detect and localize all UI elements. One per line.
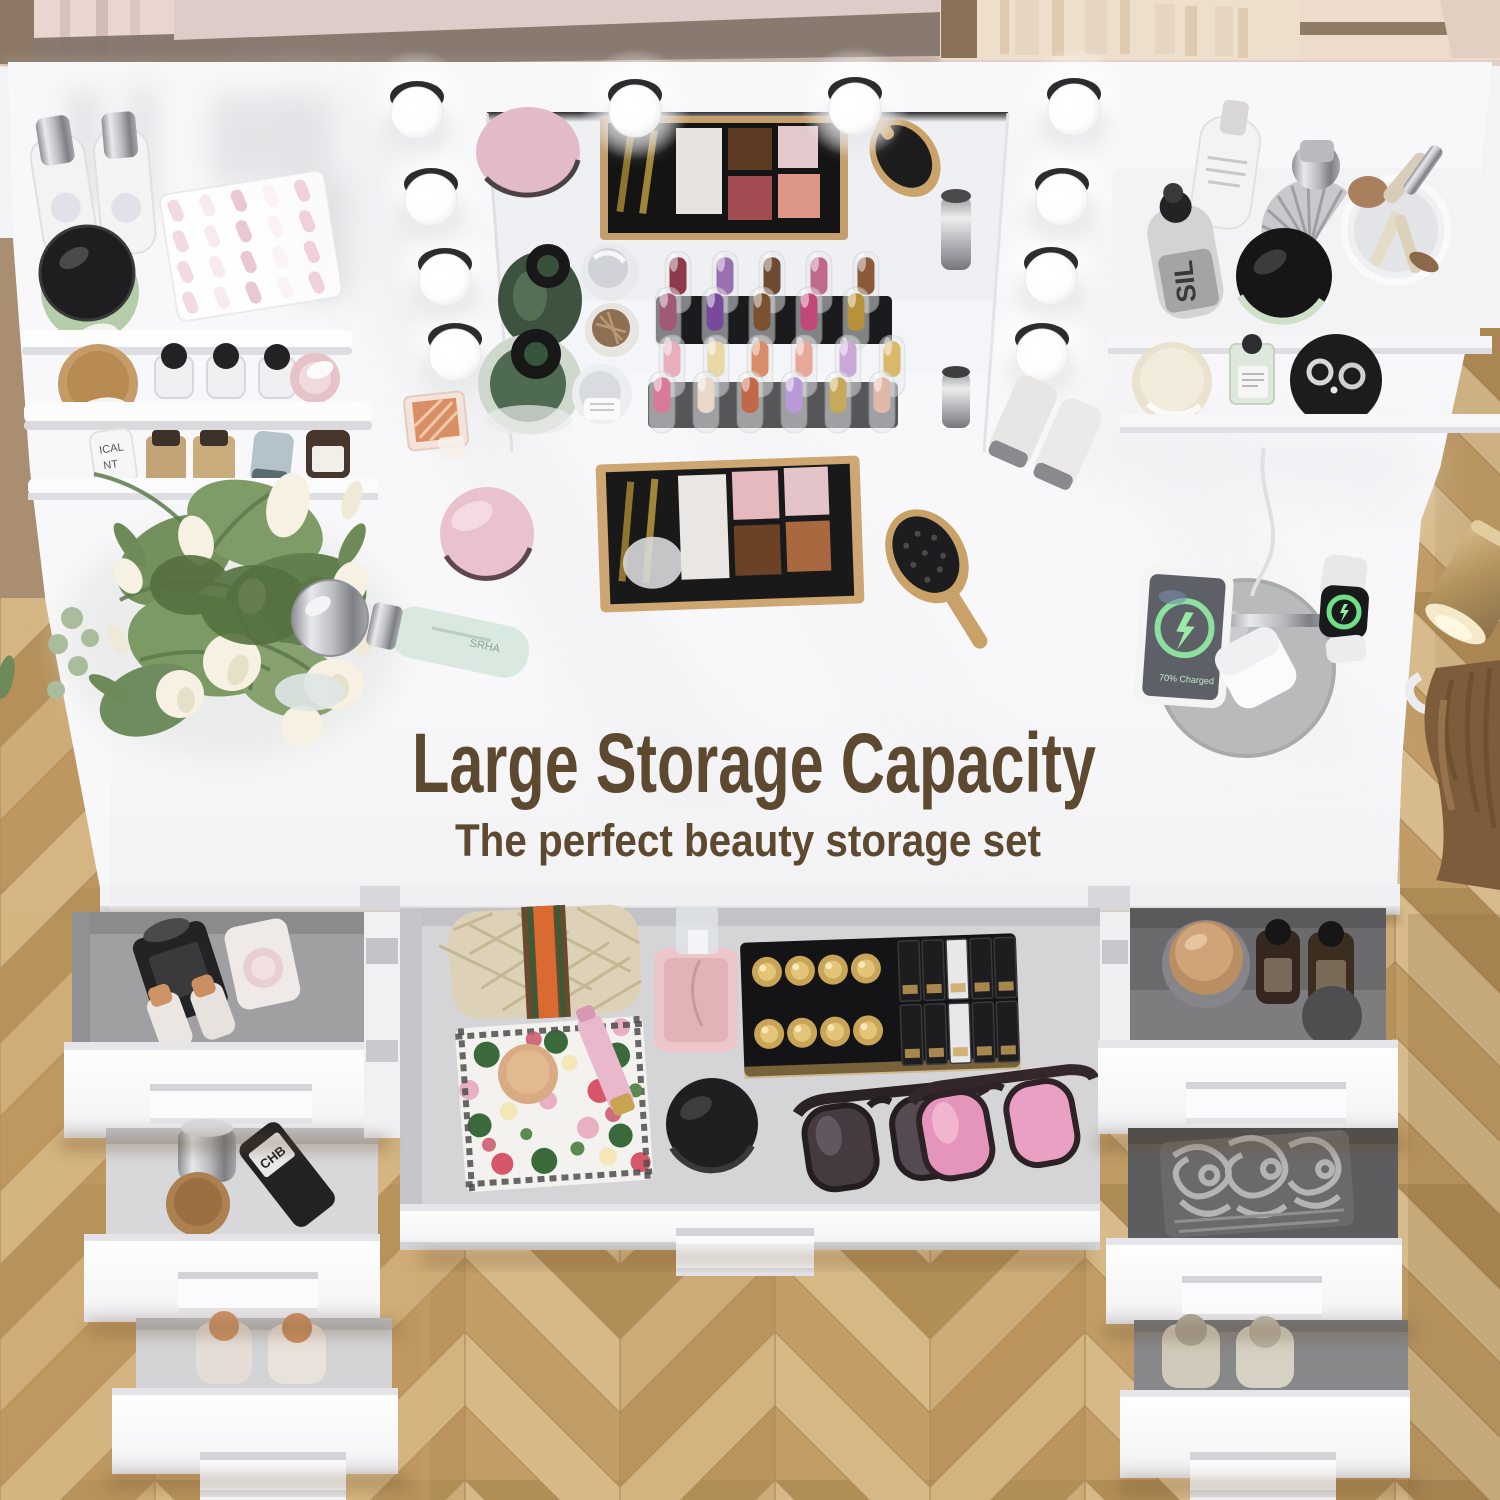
svg-text:SIL: SIL [1168,259,1202,304]
svg-text:Large Storage Capacity: Large Storage Capacity [412,716,1096,810]
svg-text:The perfect beauty storage: The perfect beauty storage set [455,815,1041,866]
svg-text:NT: NT [103,458,119,472]
